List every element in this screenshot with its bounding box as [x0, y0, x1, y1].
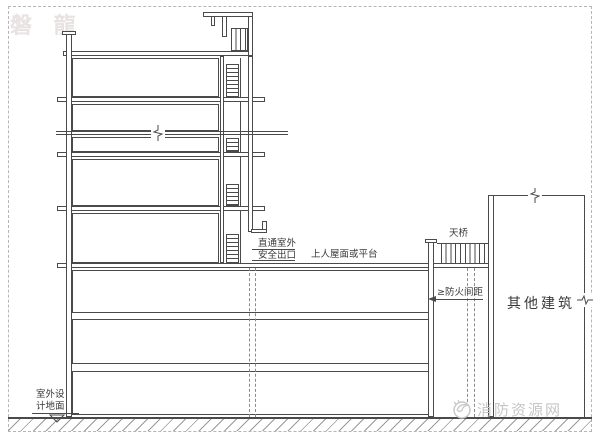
- break-symbol-right-icon: [577, 293, 593, 307]
- break-symbol-icon: [151, 125, 165, 141]
- floor-slab-3: [57, 206, 265, 211]
- stair-shaft-left-wall: [220, 56, 224, 263]
- tower-left-parapet-cap: [62, 31, 76, 35]
- tower-room-5: [72, 213, 219, 263]
- ground-hatch: [8, 419, 592, 431]
- ground-level-marker-icon: [49, 414, 65, 423]
- tower-break-line: [56, 131, 288, 135]
- tower-room-3: [72, 137, 219, 152]
- podium-room-3: [72, 371, 429, 415]
- ground-level-label-line1: 室外设: [36, 389, 65, 400]
- roof-platform-label: 上人屋面或平台: [311, 249, 378, 260]
- podium-parapet-cap: [425, 239, 437, 243]
- podium-roof-slab: [57, 263, 490, 268]
- fire-distance-leader-line: [435, 299, 483, 300]
- exit-label-line1: 直通室外: [258, 238, 296, 249]
- tower-roof-slab: [63, 51, 253, 56]
- ground-level-label-line2: 计地面: [36, 401, 65, 412]
- floor-slab-1: [57, 97, 265, 102]
- tower-room-4: [72, 159, 219, 206]
- floor-slab-2: [57, 152, 265, 157]
- other-building-label: 其他建筑: [507, 293, 575, 313]
- exit-canopy-stub: [262, 221, 267, 230]
- other-building-left-wall: [488, 195, 494, 417]
- sky-bridge-hatch: [437, 243, 488, 263]
- penthouse-left-stub: [211, 16, 215, 26]
- stair-flight-2: [226, 138, 239, 152]
- stair-shaft-right-wall: [248, 56, 253, 232]
- penthouse-door-wall: [222, 16, 227, 37]
- watermark-firenet: 消防资源网: [451, 398, 562, 420]
- penthouse-right-wall: [248, 16, 253, 56]
- exit-label-underline2: [252, 260, 295, 261]
- stair-projection-dashed-right: [255, 268, 256, 417]
- watermark-firenet-text: 消防资源网: [477, 399, 562, 420]
- tower-left-wall: [66, 34, 72, 417]
- tower-room-1: [72, 58, 219, 97]
- stair-flight-4: [226, 234, 239, 263]
- bridge-label: 天桥: [449, 228, 468, 239]
- stair-rail-line: [240, 58, 241, 263]
- stair-flight-1: [226, 64, 239, 97]
- fire-distance-arrow-icon: [428, 296, 436, 302]
- fire-distance-label: ≥防火间距: [437, 287, 483, 298]
- stair-projection-dashed-left: [249, 268, 250, 417]
- break-symbol-top-icon: [528, 188, 542, 203]
- podium-room-2: [72, 319, 429, 364]
- tower-room-2: [72, 104, 219, 131]
- stair-flight-3: [226, 184, 239, 206]
- building-section-diagram: 磐 龍: [0, 0, 600, 439]
- podium-right-wall: [428, 242, 434, 417]
- penthouse-stair-hatch: [231, 28, 248, 51]
- firenet-logo-icon: [451, 398, 473, 420]
- podium-room-1: [72, 270, 429, 313]
